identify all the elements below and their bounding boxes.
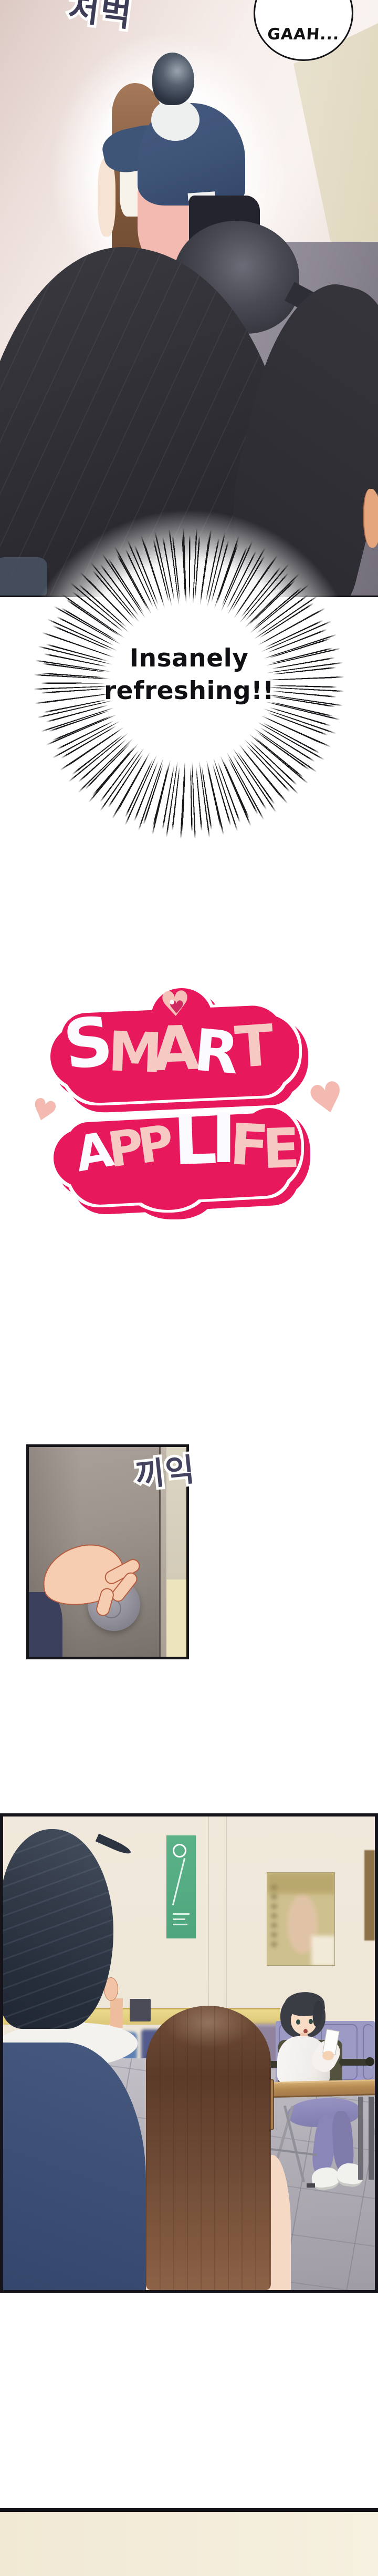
wall-seam: [208, 1816, 209, 2011]
poster-graphic-line: [172, 1858, 185, 1905]
table-leg: [358, 2097, 363, 2180]
seated-woman-eye: [309, 2019, 313, 2024]
logo-letter: P: [135, 1118, 177, 1171]
dark-box: [130, 1999, 151, 2021]
wooden-table: [260, 2079, 375, 2098]
table-leg: [369, 2097, 374, 2180]
burst-caption: Insanely refreshing!!: [10, 642, 367, 707]
foreground-guy-hair-strand: [96, 1833, 132, 1856]
door-wall-strip-lower: [166, 1579, 186, 1657]
sfx-footsteps: 처벅 처벅: [67, 0, 134, 32]
logo-letter: T: [233, 1018, 276, 1077]
sfx-door-creak-text: 끼익: [134, 1451, 197, 1494]
foreground-guy-neck: [110, 1998, 123, 2028]
panel-classroom: [0, 1813, 378, 2293]
chair-foot: [307, 2183, 315, 2188]
seated-woman-eye: [296, 2019, 300, 2025]
walking-guy-hood: [151, 99, 199, 141]
seated-woman-hand: [322, 2051, 334, 2060]
poster-blurred-art: [267, 1873, 334, 1965]
chair-armrest-knob: [365, 2057, 374, 2066]
burst-caption-line2: refreshing!!: [10, 675, 367, 707]
sfx-footsteps-text: 처벅: [66, 0, 134, 35]
logo-outline-layer: S M A R T ♥ ♥ A P P L I F E: [52, 991, 304, 1236]
panel-divider-line: [0, 2508, 378, 2512]
speech-bubble-text: GAAH...: [255, 25, 352, 44]
poster-text-line: [173, 1924, 187, 1925]
walking-guy-hair: [152, 53, 194, 105]
logo-shadow-layer: S M A R T ♥ ♥ A P P L I F E: [52, 991, 304, 1236]
logo-letter: E: [261, 1121, 301, 1176]
webtoon-page: 처벅 처벅 GAAH... Insanely refreshing!!: [0, 0, 378, 2576]
poster-edge: [364, 1850, 375, 1941]
seat-back: [363, 2024, 373, 2080]
heart-icon: ♥: [304, 1075, 350, 1124]
poster-green: [166, 1835, 196, 1938]
series-title-logo: S M A R T ♥ ♥ A P P L I F E: [52, 991, 304, 1236]
foreground-guy-hair: [0, 1829, 113, 2029]
heart-glint: [170, 1000, 174, 1004]
next-panel-top-strip: [0, 2512, 378, 2576]
wall-seam: [226, 1816, 227, 2011]
poster-circle-logo: [173, 1844, 186, 1857]
foreground-girl-hair: [146, 2006, 271, 2290]
speed-line-burst: Insanely refreshing!!: [10, 505, 367, 862]
poster-blurred: [267, 1872, 335, 1966]
sfx-door-creak: 끼익 끼익: [134, 1454, 197, 1492]
burst-caption-line1: Insanely: [10, 642, 367, 675]
poster-text-line: [173, 1913, 190, 1915]
poster-text-line: [173, 1918, 185, 1920]
